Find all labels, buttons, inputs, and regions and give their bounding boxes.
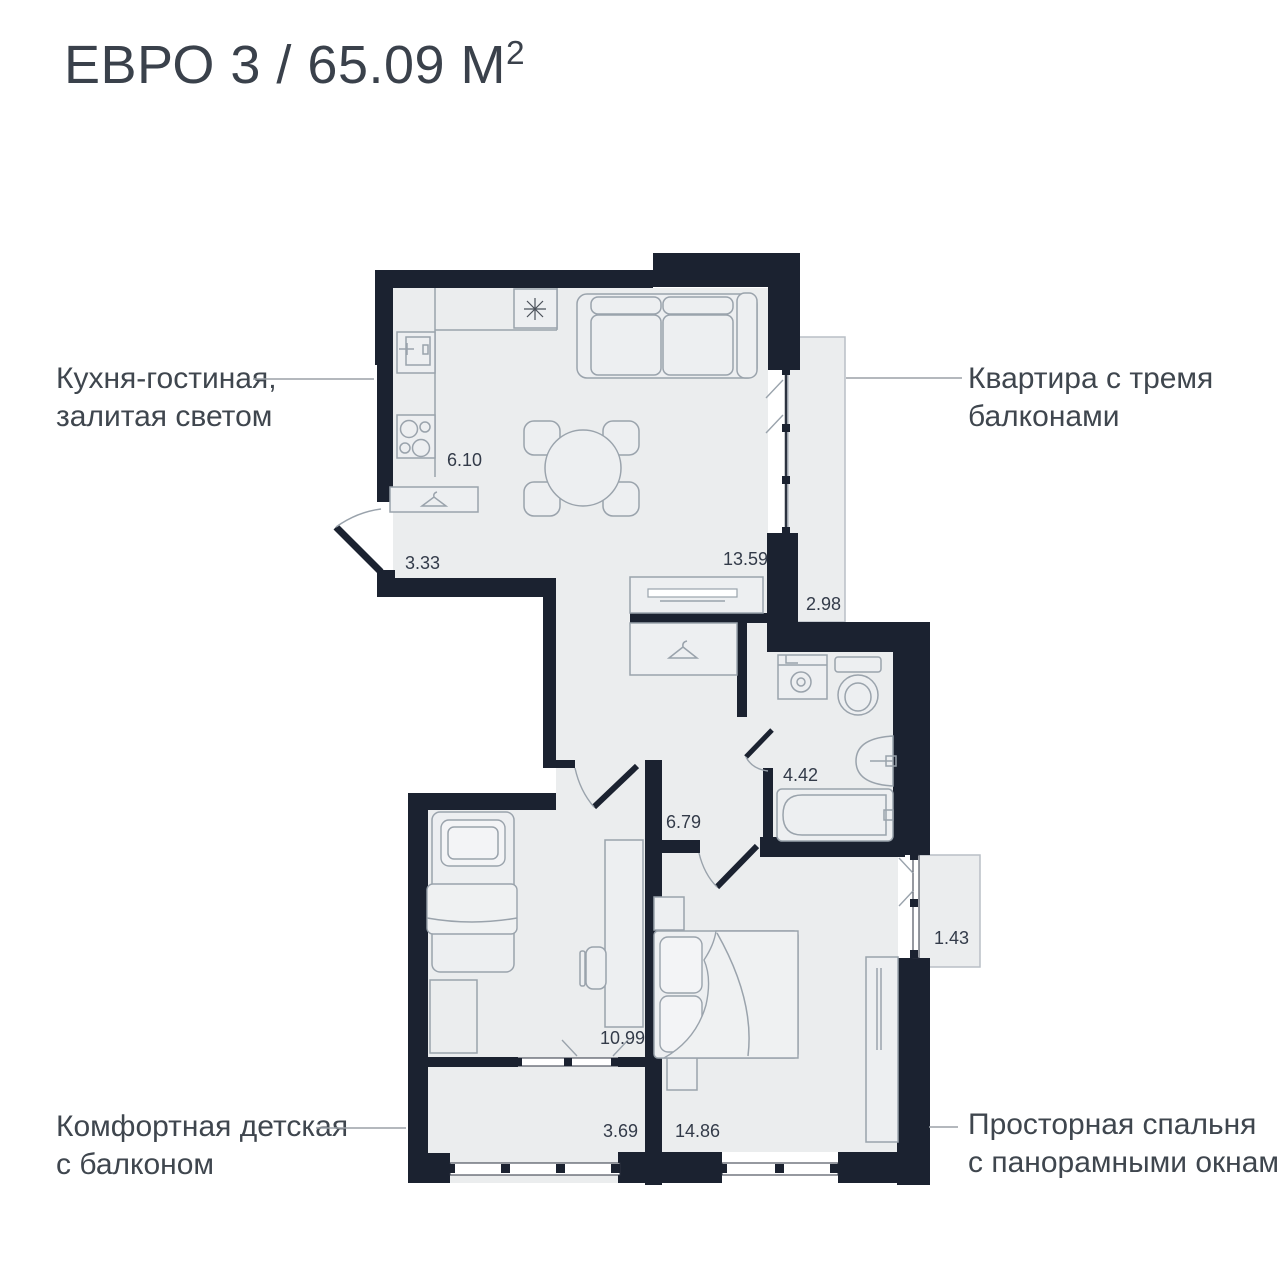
area-kitchen-zone: 6.10 xyxy=(447,450,482,470)
area-balcony-living: 2.98 xyxy=(806,594,841,614)
hall-wardrobe xyxy=(630,623,737,675)
living-balcony-window xyxy=(766,367,790,535)
washing-machine-icon xyxy=(778,655,827,699)
toilet-icon xyxy=(835,657,881,715)
bedroom-balcony-window xyxy=(899,852,919,958)
area-living: 13.59 xyxy=(723,549,768,569)
area-bedroom: 14.86 xyxy=(675,1121,720,1141)
floorplan-page: ЕВРО 3 / 65.09 М2 Кухня-гостиная, залита… xyxy=(0,0,1280,1280)
area-balcony-bedroom: 1.43 xyxy=(934,928,969,948)
entry-wardrobe xyxy=(390,487,478,512)
kids-balcony-outer-window xyxy=(446,1163,620,1175)
hood-icon xyxy=(514,289,557,328)
kids-bed xyxy=(427,812,517,972)
desk xyxy=(605,840,643,1027)
entry-door xyxy=(336,509,381,572)
area-bathroom: 4.42 xyxy=(783,765,818,785)
tv-console xyxy=(630,577,763,613)
kitchen-sink-icon xyxy=(397,332,435,373)
bathtub-icon xyxy=(777,789,893,841)
stove-icon xyxy=(397,415,435,458)
area-hallway: 6.79 xyxy=(666,812,701,832)
floorplan-svg: 6.10 3.33 13.59 2.98 4.42 6.79 10.99 1.4… xyxy=(0,0,1280,1280)
bedroom-outer-window xyxy=(718,1163,839,1175)
area-balcony-kids: 3.69 xyxy=(603,1121,638,1141)
balcony-bedroom-slab xyxy=(917,855,980,967)
area-entry: 3.33 xyxy=(405,553,440,573)
nightstand xyxy=(654,897,684,930)
dining-table xyxy=(545,430,621,506)
sofa xyxy=(577,293,757,378)
area-kids-room: 10.99 xyxy=(600,1028,645,1048)
nightstand xyxy=(667,1057,697,1090)
desk-chair xyxy=(580,947,606,989)
void-area xyxy=(390,593,545,793)
double-bed xyxy=(654,931,798,1058)
bedroom-wardrobe xyxy=(866,957,898,1142)
